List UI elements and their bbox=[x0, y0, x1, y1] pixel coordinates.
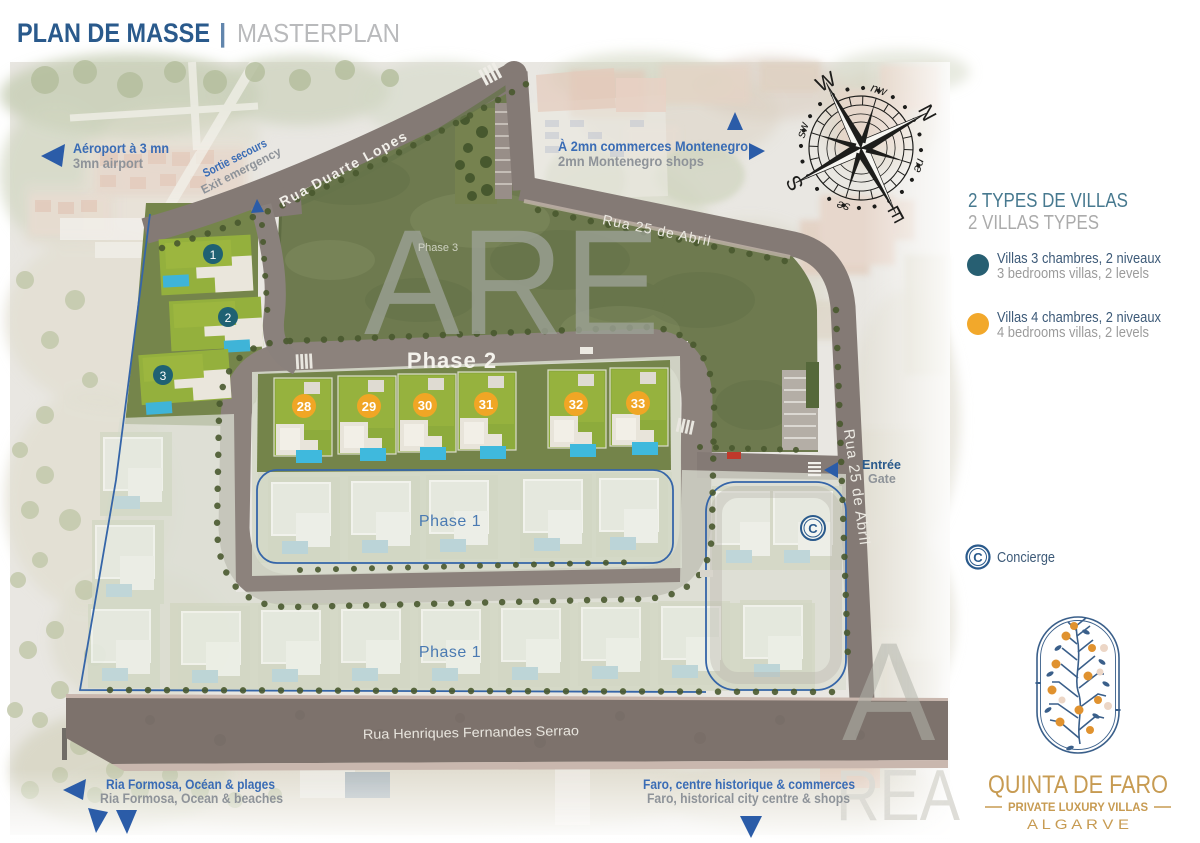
svg-text:3mn airport: 3mn airport bbox=[73, 156, 143, 171]
svg-text:Gate: Gate bbox=[868, 472, 896, 486]
svg-text:3 bedrooms villas, 2 levels: 3 bedrooms villas, 2 levels bbox=[997, 265, 1149, 282]
svg-text:3: 3 bbox=[160, 369, 167, 383]
svg-text:A L G A R V E: A L G A R V E bbox=[1027, 817, 1129, 832]
svg-text:28: 28 bbox=[297, 399, 311, 414]
svg-text:A: A bbox=[842, 613, 936, 770]
svg-text:Faro, centre historique & comm: Faro, centre historique & commerces bbox=[643, 777, 855, 792]
svg-text:2mn Montenegro shops: 2mn Montenegro shops bbox=[558, 154, 704, 169]
svg-text:Phase 1: Phase 1 bbox=[419, 644, 481, 661]
svg-text:1: 1 bbox=[210, 248, 217, 262]
svg-text:Ria Formosa, Ocean & beaches: Ria Formosa, Ocean & beaches bbox=[100, 791, 283, 806]
svg-text:MASTERPLAN: MASTERPLAN bbox=[237, 18, 400, 48]
svg-text:2 VILLAS TYPES: 2 VILLAS TYPES bbox=[968, 212, 1099, 234]
svg-text:C: C bbox=[973, 550, 983, 565]
svg-text:29: 29 bbox=[362, 399, 376, 414]
svg-text:Phase 2: Phase 2 bbox=[407, 348, 497, 373]
svg-text:QUINTA DE FARO: QUINTA DE FARO bbox=[988, 771, 1168, 799]
svg-text:Faro, historical city centre &: Faro, historical city centre & shops bbox=[647, 791, 850, 806]
svg-text:PLAN DE MASSE: PLAN DE MASSE bbox=[17, 18, 210, 48]
svg-text:Entrée: Entrée bbox=[862, 458, 901, 472]
svg-text:Phase 3: Phase 3 bbox=[418, 242, 458, 254]
svg-text:31: 31 bbox=[479, 397, 493, 412]
svg-text:2: 2 bbox=[225, 311, 232, 325]
svg-text:32: 32 bbox=[569, 397, 583, 412]
svg-text:C: C bbox=[808, 521, 818, 536]
svg-text:33: 33 bbox=[631, 396, 645, 411]
svg-text:Ria Formosa, Océan & plages: Ria Formosa, Océan & plages bbox=[106, 777, 275, 792]
svg-text:2 TYPES DE VILLAS: 2 TYPES DE VILLAS bbox=[968, 190, 1128, 212]
svg-text:Concierge: Concierge bbox=[997, 549, 1055, 566]
svg-text:30: 30 bbox=[418, 398, 432, 413]
svg-text:À 2mn commerces Montenegro: À 2mn commerces Montenegro bbox=[558, 139, 748, 154]
svg-text:PRIVATE LUXURY VILLAS: PRIVATE LUXURY VILLAS bbox=[1008, 802, 1148, 814]
svg-text:4 bedrooms villas, 2 levels: 4 bedrooms villas, 2 levels bbox=[997, 324, 1149, 341]
svg-text:Phase 1: Phase 1 bbox=[419, 513, 481, 530]
svg-text:Aéroport à 3 mn: Aéroport à 3 mn bbox=[73, 141, 169, 156]
svg-text:|: | bbox=[219, 18, 226, 48]
svg-text:REA: REA bbox=[836, 756, 960, 836]
